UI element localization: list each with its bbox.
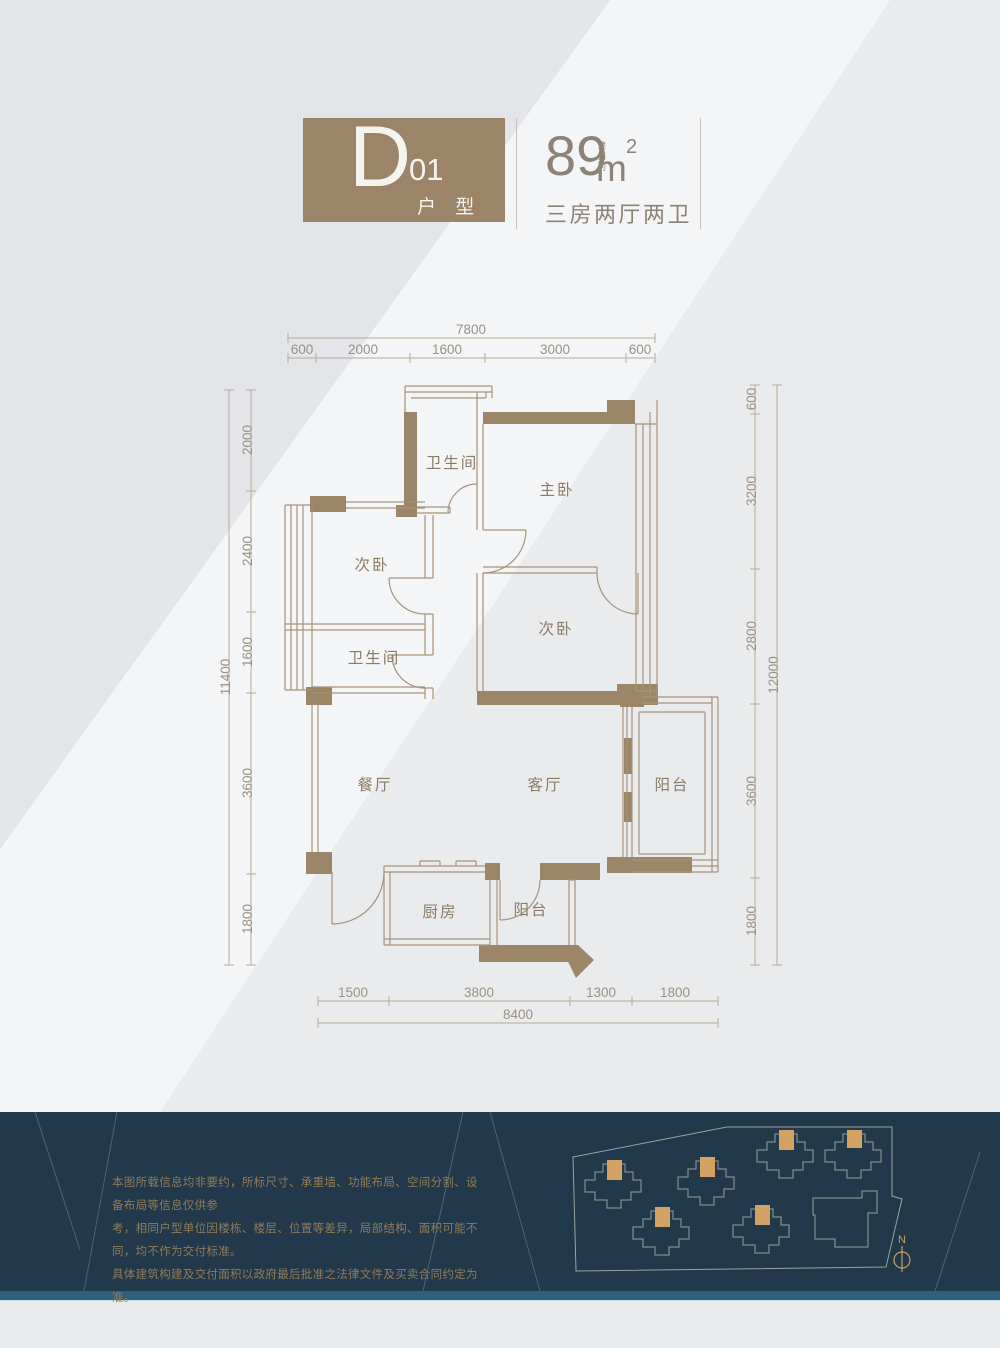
layout-label: 三房两厅两卫: [545, 197, 692, 229]
dim-top-seg: 3000: [540, 342, 570, 357]
dim-top-seg: 600: [629, 342, 652, 357]
dim-bottom-seg: 1800: [660, 985, 690, 1000]
dim-right-total: 12000: [766, 656, 781, 694]
room-label-bath-top: 卫生间: [426, 454, 479, 472]
dim-bottom-total: 8400: [503, 1007, 533, 1022]
dim-left-seg: 1800: [240, 904, 255, 934]
area-unit: m: [596, 150, 627, 187]
site-boundary: [573, 1127, 902, 1271]
site-building: [633, 1207, 689, 1255]
dim-left-seg: 3600: [240, 768, 255, 798]
dim-left-total: 11400: [218, 659, 233, 696]
dim-left-seg: 2000: [240, 425, 255, 455]
dim-bottom-seg: 3800: [464, 985, 494, 1000]
dim-top-seg: 2000: [348, 342, 378, 357]
structural-walls: [306, 400, 692, 978]
header-divider: [700, 118, 701, 229]
dim-top-seg: 1600: [432, 342, 462, 357]
site-building: [678, 1157, 734, 1205]
north-label: N: [898, 1234, 906, 1246]
dimension-lines: [224, 333, 782, 1028]
site-building: [757, 1130, 813, 1178]
room-label-master: 主卧: [539, 481, 574, 499]
floor-plan: 7800 600 2000 1600 3000 600 11400 2000 2…: [205, 315, 830, 1037]
room-label-balcony-right: 阳台: [654, 776, 689, 794]
site-buildings: [585, 1130, 881, 1255]
room-label-kitchen: 厨房: [422, 903, 457, 921]
dim-right-seg: 2800: [744, 621, 759, 651]
site-plan: N: [573, 1127, 910, 1272]
disclaimer-text: 本图所载信息均非要约，所标尺寸、承重墙、功能布局、空间分割、设备布局等信息仅供参…: [112, 1172, 484, 1310]
unit-type-suffix: 户 型: [417, 192, 481, 219]
dim-right-seg: 1800: [744, 906, 759, 936]
dim-top-total: 7800: [456, 322, 486, 337]
room-label-bed-left: 次卧: [354, 556, 389, 574]
unit-type-letter: D: [349, 114, 411, 200]
room-label-dining: 餐厅: [357, 776, 392, 794]
room-label-bath-left: 卫生间: [348, 649, 401, 667]
dim-right-seg: 600: [744, 388, 759, 411]
site-building: [825, 1130, 881, 1178]
site-building: [585, 1160, 641, 1208]
room-label-bed-right: 次卧: [538, 620, 573, 638]
dim-right-seg: 3600: [744, 776, 759, 806]
north-arrow-icon: N: [894, 1234, 910, 1272]
dim-top-seg: 600: [291, 342, 314, 357]
site-building: [733, 1205, 789, 1253]
disclaimer-line: 本图所载信息均非要约，所标尺寸、承重墙、功能布局、空间分割、设备布局等信息仅供参: [112, 1172, 484, 1218]
header-divider: [516, 118, 517, 229]
dim-bottom-seg: 1300: [586, 985, 616, 1000]
unit-type-box: D 01 户 型: [303, 118, 505, 222]
area-exponent: 2: [626, 136, 637, 159]
dim-left-seg: 1600: [240, 637, 255, 667]
site-building-plain: [813, 1191, 877, 1247]
disclaimer-line: 考，相同户型单位因楼栋、楼层、位置等差异，局部结构、面积可能不同，均不作为交付标…: [112, 1218, 484, 1264]
dim-bottom-seg: 1500: [338, 985, 368, 1000]
dim-right-seg: 3200: [744, 476, 759, 506]
room-label-balcony-bottom: 阳台: [513, 901, 548, 919]
dim-left-seg: 2400: [240, 536, 255, 566]
disclaimer-line: 具体建筑构建及交付面积以政府最后批准之法律文件及买卖合同约定为准。: [112, 1264, 484, 1310]
unit-type-number: 01: [409, 154, 443, 185]
room-label-living: 客厅: [527, 776, 562, 794]
